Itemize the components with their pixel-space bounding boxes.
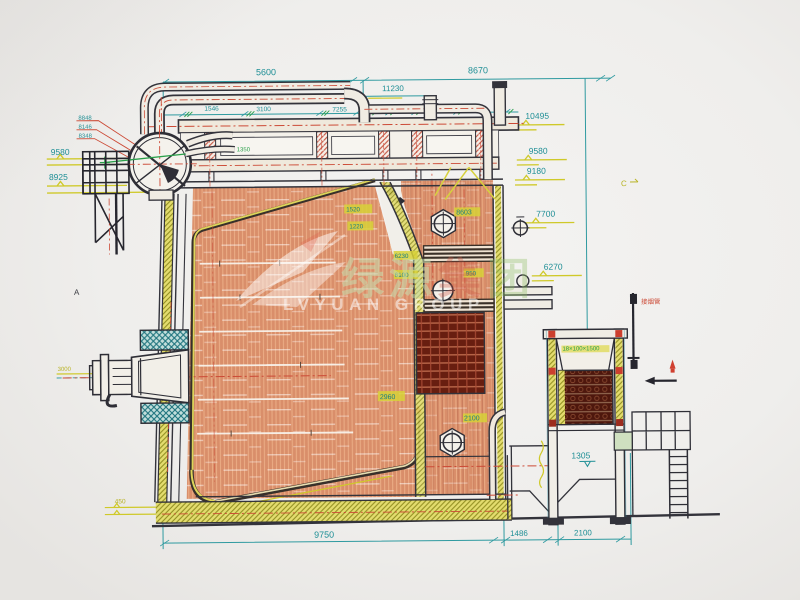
svg-text:1220: 1220 [349,223,363,230]
svg-text:8603: 8603 [456,209,472,216]
svg-text:7700: 7700 [536,209,555,219]
svg-text:9750: 9750 [314,530,334,540]
svg-text:9180: 9180 [527,166,546,176]
svg-text:1305: 1305 [571,450,590,460]
svg-text:团: 团 [487,256,530,304]
svg-text:3100: 3100 [256,106,271,113]
svg-text:3000: 3000 [58,367,72,373]
svg-text:2100: 2100 [574,528,592,537]
svg-text:接烟管: 接烟管 [641,297,661,306]
svg-text:1520: 1520 [346,206,360,213]
svg-text:11230: 11230 [382,84,404,93]
svg-text:1350: 1350 [237,147,251,153]
svg-text:10495: 10495 [525,111,549,121]
svg-text:18×100×1500: 18×100×1500 [562,346,600,352]
svg-text:A: A [74,288,80,297]
svg-text:C: C [621,179,627,188]
svg-text:5600: 5600 [256,67,276,77]
svg-text:1546: 1546 [204,106,219,113]
svg-text:LVYUAN GROUP: LVYUAN GROUP [283,295,485,314]
svg-text:6270: 6270 [544,262,563,272]
svg-text:2960: 2960 [380,394,396,401]
svg-text:9580: 9580 [529,146,548,156]
svg-text:8925: 8925 [49,172,68,182]
svg-text:8670: 8670 [468,65,488,75]
svg-text:1486: 1486 [510,529,528,538]
svg-text:2100: 2100 [464,415,480,422]
svg-text:7255: 7255 [332,106,347,113]
